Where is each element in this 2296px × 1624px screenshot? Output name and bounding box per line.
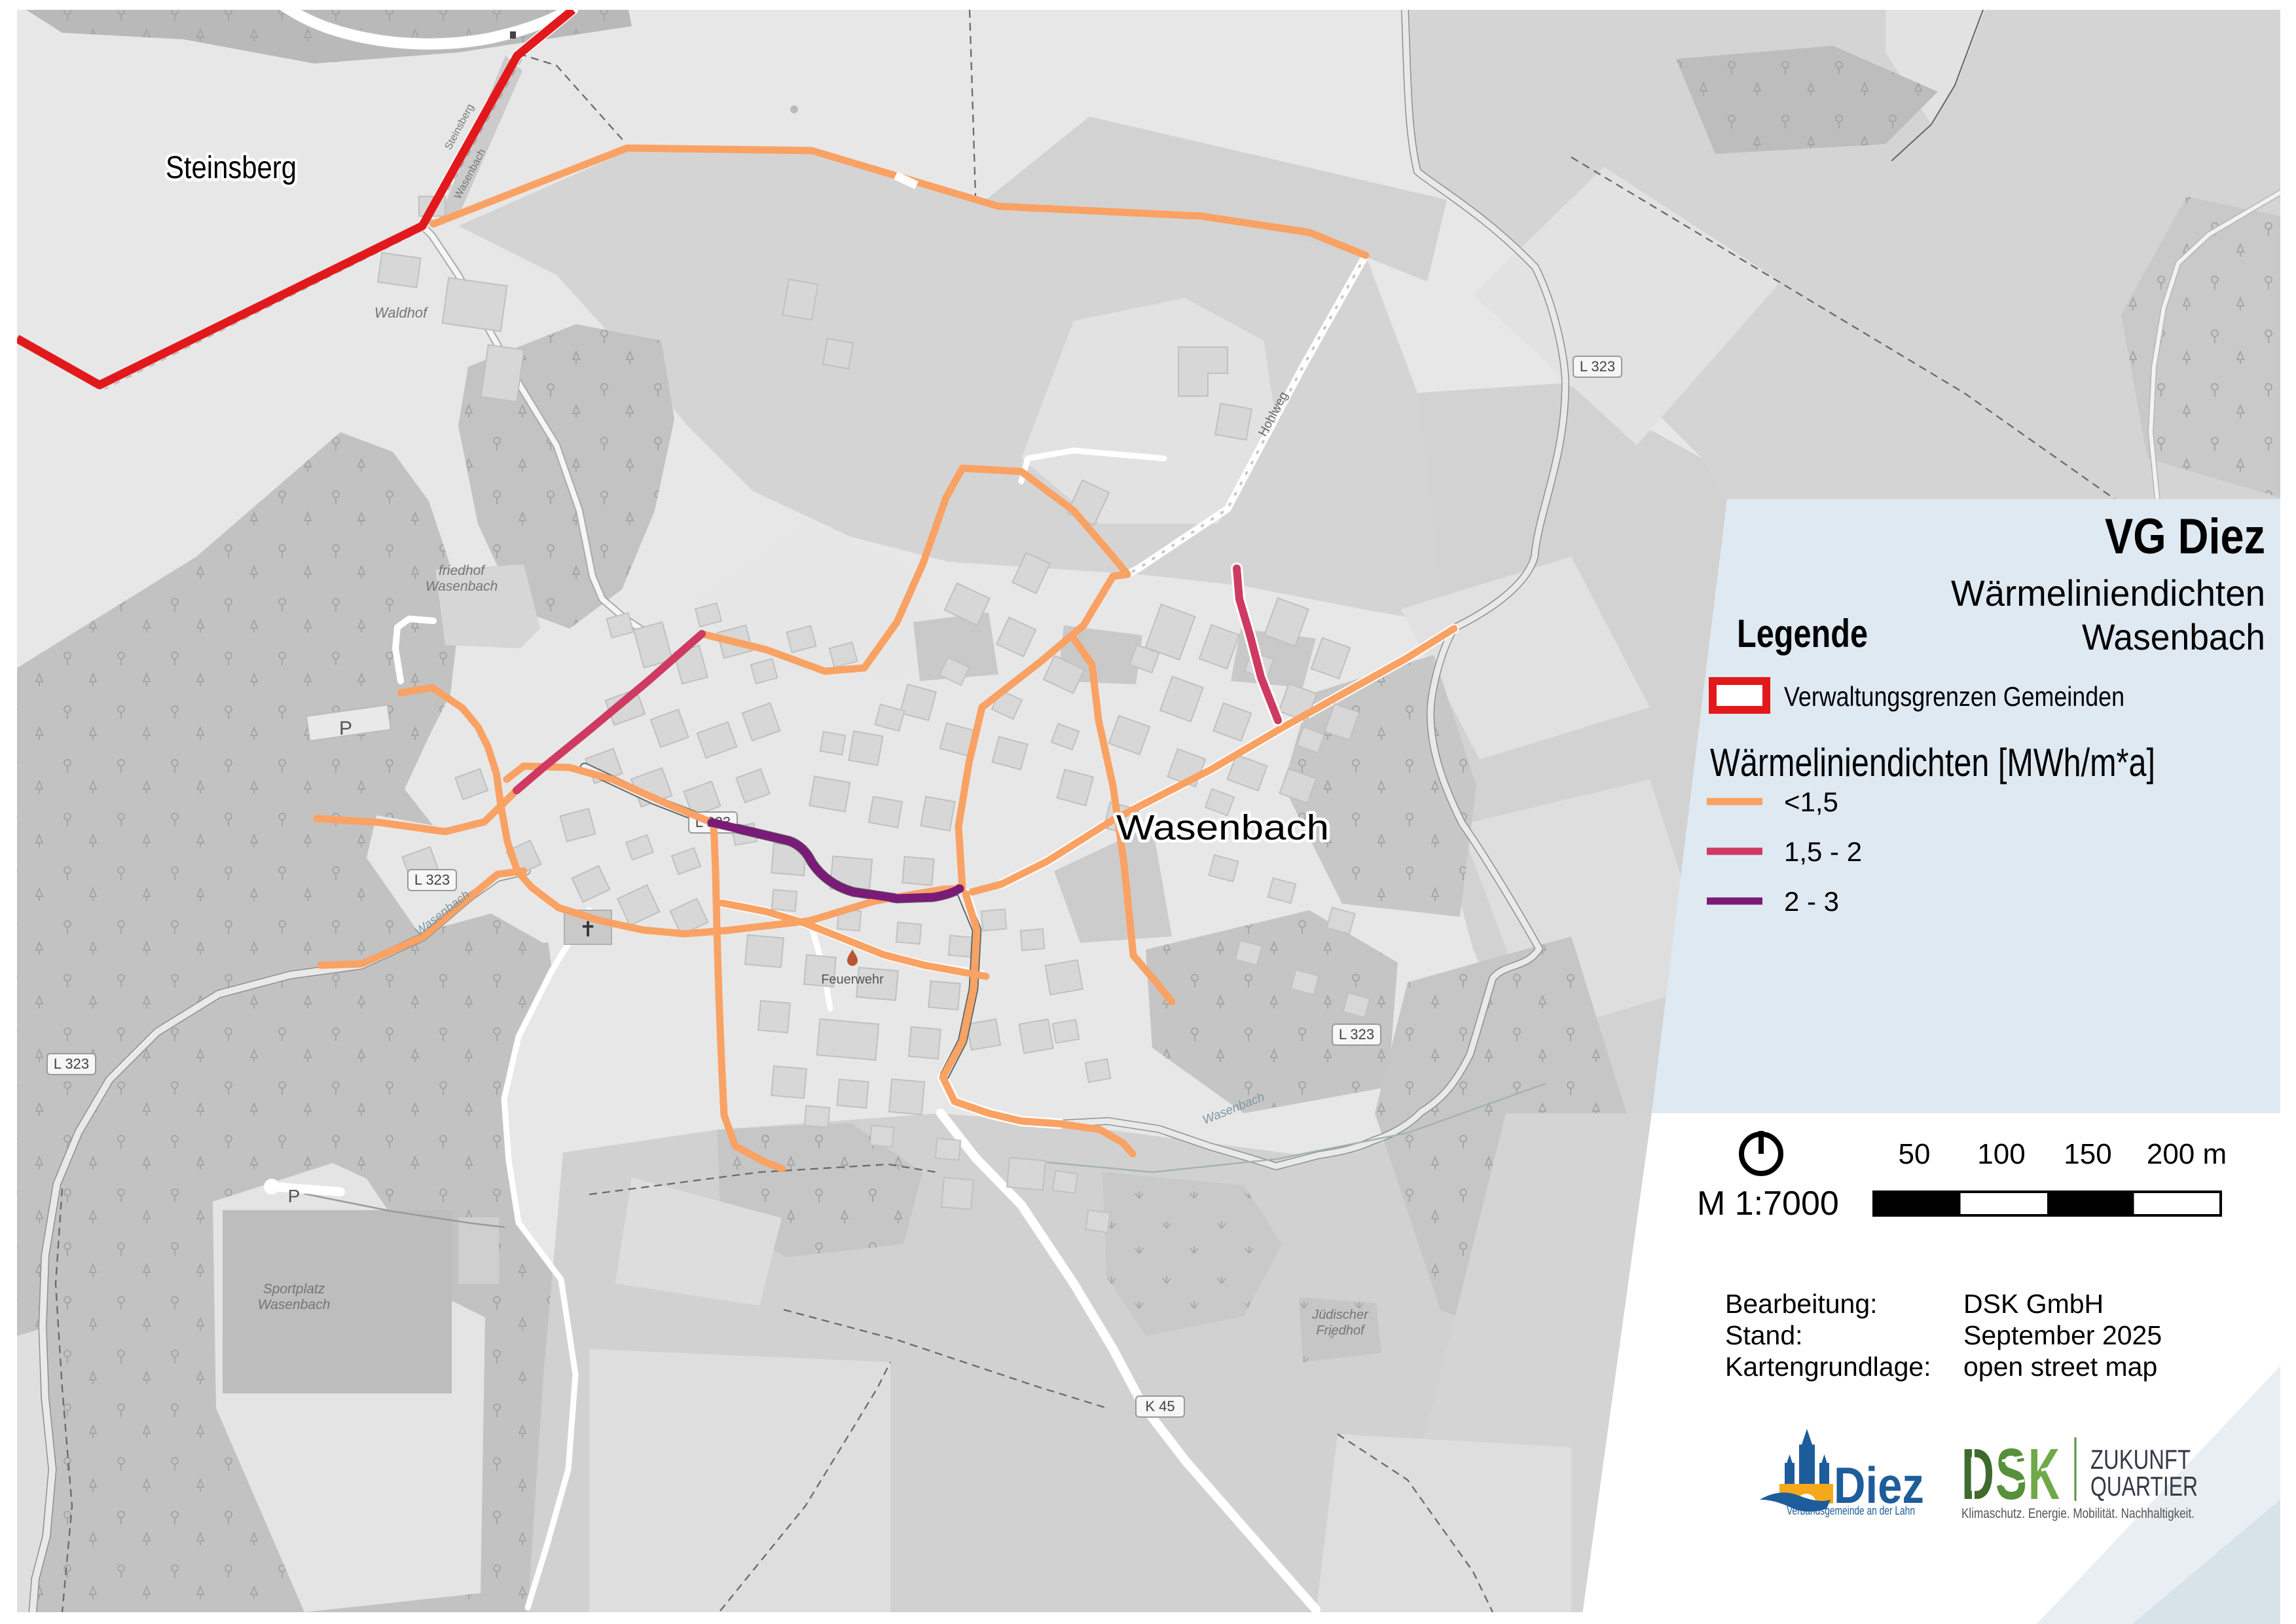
svg-text:L 323: L 323 xyxy=(54,1056,89,1072)
svg-text:P: P xyxy=(288,1186,301,1206)
svg-text:Waldhof: Waldhof xyxy=(374,304,429,321)
svg-text:150: 150 xyxy=(2064,1138,2111,1170)
svg-text:Wasenbach: Wasenbach xyxy=(2082,616,2265,657)
svg-text:Kartengrundlage:: Kartengrundlage: xyxy=(1725,1352,1931,1382)
svg-text:200 m: 200 m xyxy=(2147,1138,2227,1170)
svg-text:D: D xyxy=(1961,1434,1994,1515)
svg-text:Feuerwehr: Feuerwehr xyxy=(821,972,884,987)
svg-text:Wärmeliniendichten: Wärmeliniendichten xyxy=(1951,572,2265,614)
svg-text:VG Diez: VG Diez xyxy=(2105,509,2265,564)
svg-text:QUARTIER: QUARTIER xyxy=(2090,1471,2198,1502)
svg-text:100: 100 xyxy=(1977,1138,2025,1170)
svg-text:Wasenbach: Wasenbach xyxy=(1116,808,1329,847)
svg-text:S: S xyxy=(1995,1434,2027,1515)
svg-text:Wasenbach: Wasenbach xyxy=(258,1297,331,1312)
svg-text:Stand:: Stand: xyxy=(1725,1320,1803,1350)
svg-text:L 323: L 323 xyxy=(1580,358,1615,375)
svg-text:Sportplatz: Sportplatz xyxy=(263,1282,325,1297)
svg-text:Klimaschutz. Energie. Mobilitä: Klimaschutz. Energie. Mobilität. Nachhal… xyxy=(1961,1506,2195,1521)
svg-text:Friedhof: Friedhof xyxy=(1316,1323,1366,1338)
svg-text:Verwaltungsgrenzen Gemeinden: Verwaltungsgrenzen Gemeinden xyxy=(1784,681,2124,712)
svg-text:friedhof: friedhof xyxy=(439,563,486,578)
svg-text:K 45: K 45 xyxy=(1145,1398,1175,1414)
svg-text:P: P xyxy=(339,718,352,739)
svg-text:Steinsberg: Steinsberg xyxy=(166,151,297,185)
svg-text:L 323: L 323 xyxy=(1339,1026,1374,1043)
svg-text:Wasenbach: Wasenbach xyxy=(426,579,498,594)
svg-text:K: K xyxy=(2028,1434,2060,1515)
svg-text:L 323: L 323 xyxy=(414,872,450,888)
svg-text:Verbandsgemeinde an der Lahn: Verbandsgemeinde an der Lahn xyxy=(1787,1504,1915,1517)
svg-text:2 - 3: 2 - 3 xyxy=(1784,886,1839,917)
svg-text:Jüdischer: Jüdischer xyxy=(1311,1308,1369,1322)
svg-text:50: 50 xyxy=(1899,1138,1931,1170)
svg-text:Wärmeliniendichten [MWh/m*a]: Wärmeliniendichten [MWh/m*a] xyxy=(1710,741,2155,784)
svg-text:M 1:7000: M 1:7000 xyxy=(1697,1185,1839,1223)
svg-text:ZUKUNFT: ZUKUNFT xyxy=(2090,1444,2191,1475)
svg-text:September 2025: September 2025 xyxy=(1963,1320,2162,1350)
svg-text:open street map: open street map xyxy=(1963,1352,2157,1382)
svg-text:DSK GmbH: DSK GmbH xyxy=(1963,1289,2104,1319)
svg-text:1,5 - 2: 1,5 - 2 xyxy=(1784,836,1862,867)
svg-text:Legende: Legende xyxy=(1737,612,1868,655)
svg-text:Bearbeitung:: Bearbeitung: xyxy=(1725,1289,1878,1319)
svg-text:<1,5: <1,5 xyxy=(1784,786,1838,817)
